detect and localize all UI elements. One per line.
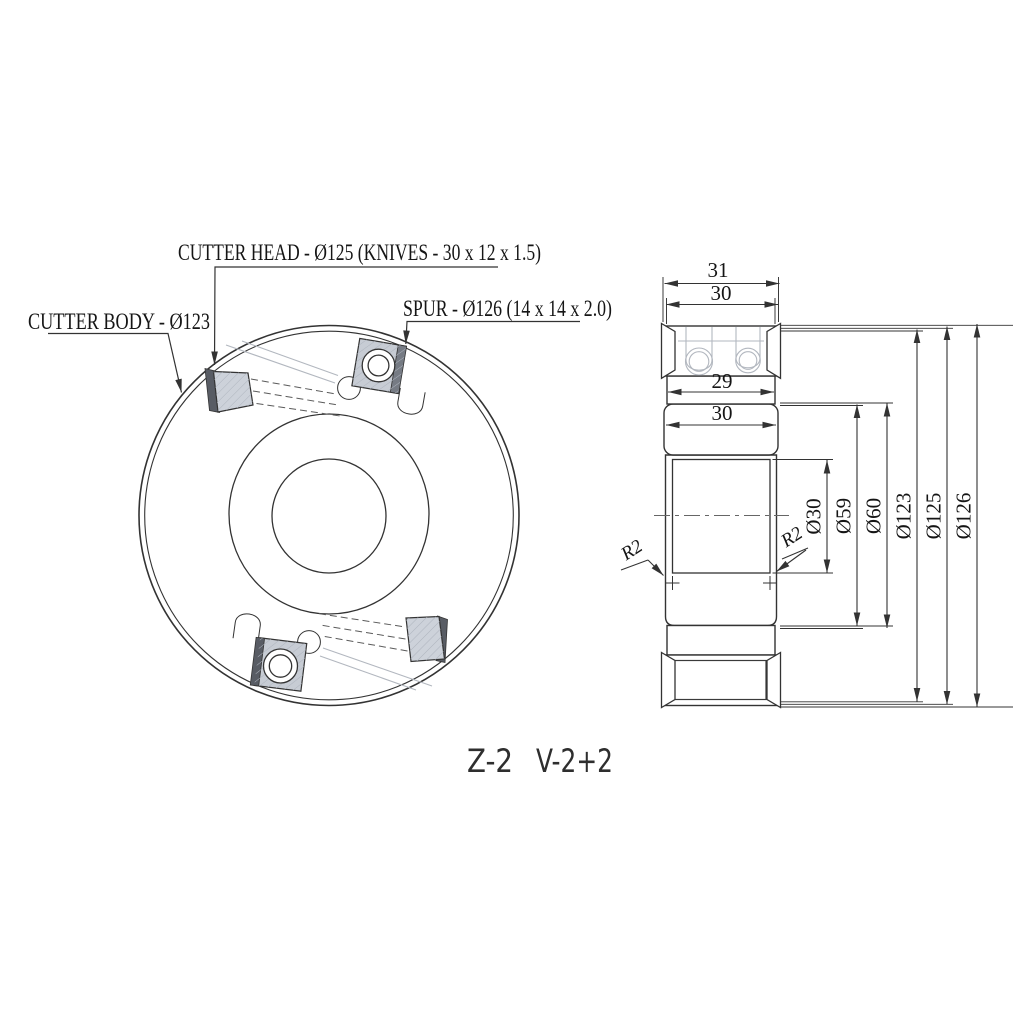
hidden-pocket-lines-top <box>251 379 340 416</box>
knife-bottom-right <box>406 616 448 663</box>
dim-hub-d60: Ø60 <box>862 498 886 534</box>
gullet-slot-top <box>396 388 425 416</box>
boss-circle <box>229 414 429 614</box>
technical-drawing-page: CUTTER HEAD - Ø125 (KNIVES - 30 x 12 x 1… <box>0 0 1024 1024</box>
knife-hatch <box>214 372 254 413</box>
cap-top-left <box>662 324 676 379</box>
leader-spur <box>406 322 580 345</box>
cap-bottom-left <box>662 653 676 708</box>
bore-circle <box>272 459 386 573</box>
bore-section <box>673 460 771 574</box>
marking-teeth: Z-2 <box>467 742 513 780</box>
dim-body-dia: Ø123 <box>892 493 916 540</box>
label-cutter-body: CUTTER BODY - Ø123 <box>28 309 210 334</box>
knife-top-left <box>205 369 253 413</box>
dim-body-width: 29 <box>712 369 733 393</box>
marking-wings: V-2+2 <box>536 742 613 780</box>
hidden-pocket-lines-bottom <box>318 614 408 652</box>
body-rim-circle <box>145 331 514 700</box>
spur-screw-hole <box>269 655 291 677</box>
leader-r2-right <box>777 550 807 572</box>
dim-head-dia: Ø125 <box>922 493 946 540</box>
diameter-dimensions: Ø30 Ø59 Ø60 Ø123 Ø125 Ø126 <box>802 324 978 707</box>
label-cutter-head: CUTTER HEAD - Ø125 (KNIVES - 30 x 12 x 1… <box>178 240 541 265</box>
dim-hub-width: 30 <box>712 401 733 425</box>
cap-top-right <box>767 324 781 379</box>
spur-cutting-circle <box>139 326 519 706</box>
tool-marking: Z-2 V-2+2 <box>467 742 613 780</box>
spur-top-right <box>352 338 407 393</box>
dim-overall-width: 31 <box>708 258 729 282</box>
leader-r2-left-underline <box>621 560 648 570</box>
dim-head-width: 30 <box>711 281 732 305</box>
leader-r2-left <box>648 560 664 576</box>
spur-screw-hole <box>368 355 389 376</box>
side-view: 31 30 29 30 Ø30 Ø59 Ø60 Ø123 Ø125 Ø126 <box>617 258 1013 708</box>
rim-band-bottom <box>664 655 779 706</box>
cutter-head-drawing: CUTTER HEAD - Ø125 (KNIVES - 30 x 12 x 1… <box>0 0 1024 1024</box>
spur-bottom-left <box>250 637 306 691</box>
label-spur: SPUR - Ø126 (14 x 14 x 2.0) <box>403 296 612 321</box>
knife-hatch <box>406 617 445 662</box>
leader-cutter-body <box>48 334 182 393</box>
dim-spur-dia: Ø126 <box>952 493 976 540</box>
front-view: CUTTER HEAD - Ø125 (KNIVES - 30 x 12 x 1… <box>28 240 612 706</box>
body-step-bottom <box>667 626 775 656</box>
dim-bore: Ø30 <box>802 498 826 534</box>
dim-hub-d59: Ø59 <box>832 498 856 534</box>
dim-fillet-left: R2 <box>617 536 647 566</box>
cap-bottom-right <box>767 653 781 708</box>
